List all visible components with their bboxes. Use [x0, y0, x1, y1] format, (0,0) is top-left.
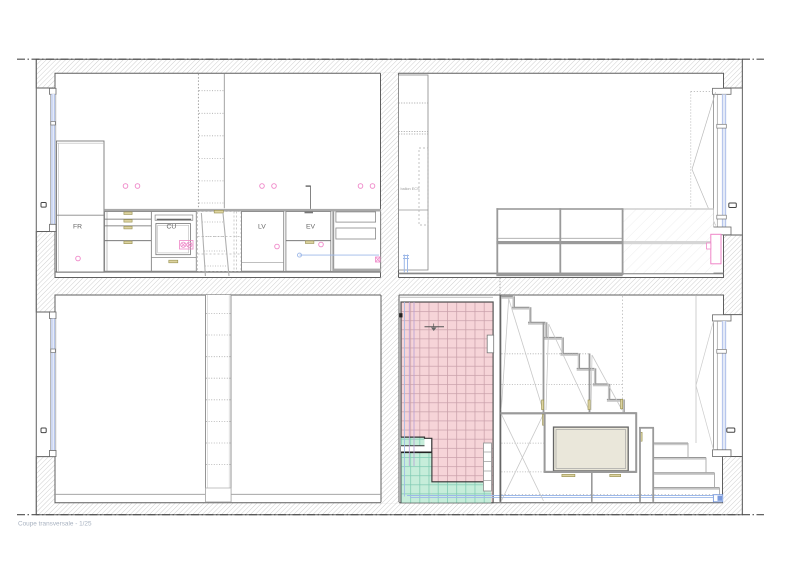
svg-text:EV: EV — [306, 224, 316, 231]
svg-text:CU: CU — [167, 224, 177, 231]
svg-text:Coupe transversale - 1/25: Coupe transversale - 1/25 — [18, 521, 92, 528]
svg-text:LV: LV — [258, 224, 266, 231]
svg-text:FR: FR — [73, 224, 82, 231]
svg-text:ballon ECS: ballon ECS — [401, 187, 420, 191]
